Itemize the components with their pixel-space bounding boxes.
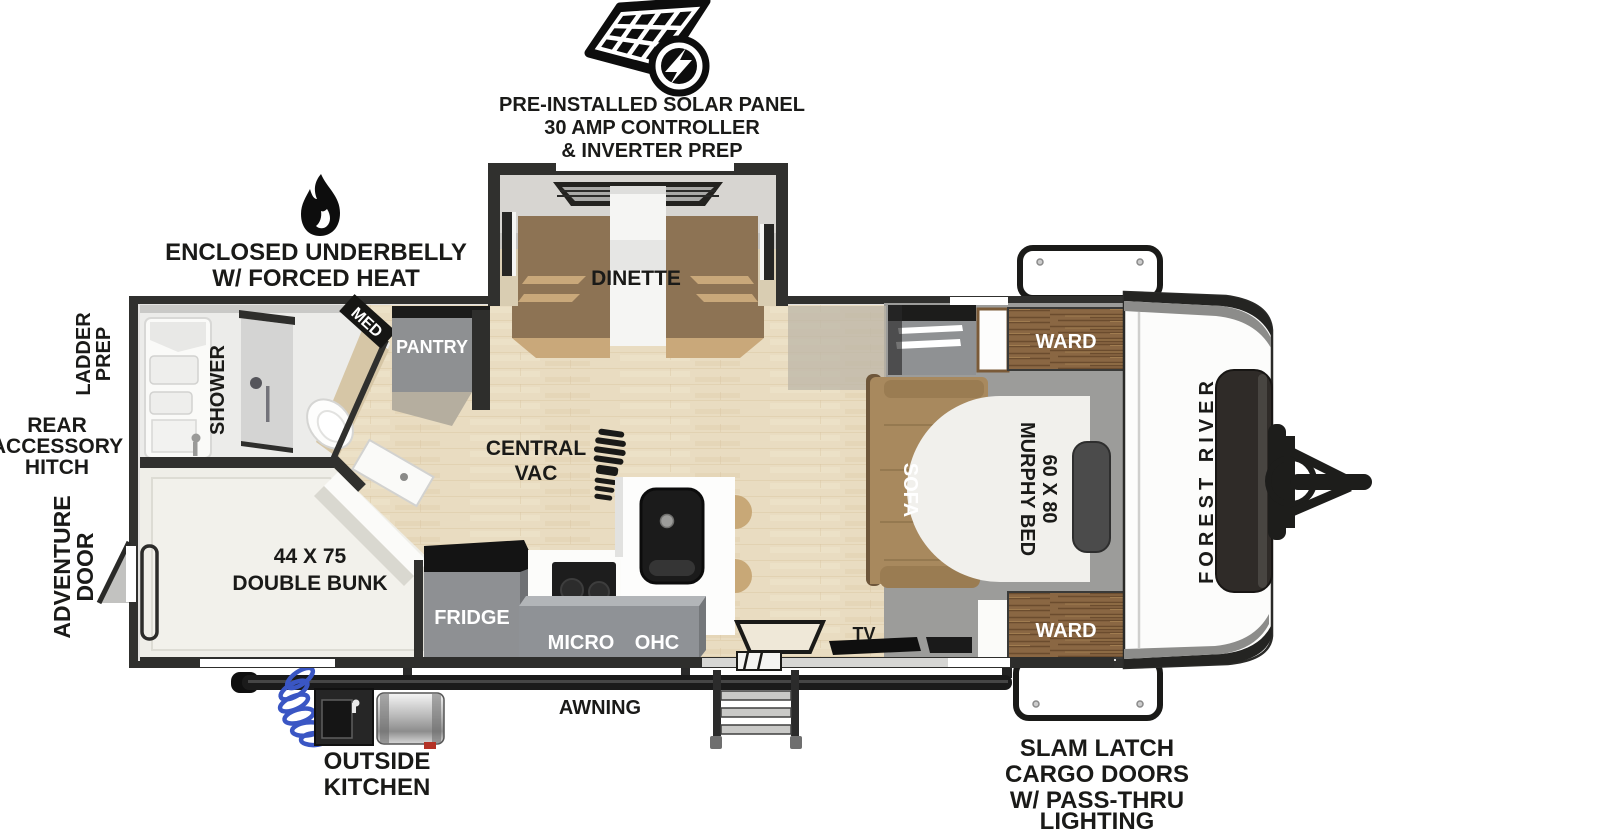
svg-text:AWNING: AWNING — [559, 697, 641, 719]
svg-text:FOREST RIVER: FOREST RIVER — [1196, 376, 1218, 584]
svg-text:SLAM LATCH: SLAM LATCH — [1020, 735, 1174, 762]
svg-text:DINETTE: DINETTE — [591, 267, 681, 290]
svg-text:DOUBLE BUNK: DOUBLE BUNK — [232, 572, 387, 595]
svg-text:& INVERTER PREP: & INVERTER PREP — [561, 140, 742, 162]
svg-text:PRE-INSTALLED SOLAR PANEL: PRE-INSTALLED SOLAR PANEL — [499, 94, 805, 116]
svg-text:CENTRAL: CENTRAL — [486, 437, 586, 460]
svg-text:OHC: OHC — [635, 632, 679, 654]
svg-text:SOFA: SOFA — [899, 463, 921, 517]
svg-text:FRIDGE: FRIDGE — [434, 607, 510, 629]
svg-text:HITCH: HITCH — [25, 456, 89, 479]
svg-text:ACCESSORY: ACCESSORY — [0, 435, 123, 458]
svg-text:44 X 75: 44 X 75 — [274, 545, 347, 568]
svg-text:WARD: WARD — [1035, 331, 1096, 353]
svg-text:PREP: PREP — [93, 327, 115, 381]
svg-text:TV: TV — [852, 624, 875, 644]
svg-text:LIGHTING: LIGHTING — [1040, 808, 1155, 829]
svg-text:MURPHY BED: MURPHY BED — [1016, 422, 1038, 556]
svg-text:ENCLOSED UNDERBELLY: ENCLOSED UNDERBELLY — [165, 239, 467, 266]
svg-text:LADDER: LADDER — [73, 312, 95, 396]
svg-text:60 X 80: 60 X 80 — [1038, 455, 1060, 524]
svg-text:SHOWER: SHOWER — [207, 344, 229, 435]
svg-text:KITCHEN: KITCHEN — [324, 774, 431, 801]
svg-text:REAR: REAR — [27, 414, 87, 437]
svg-text:VAC: VAC — [515, 462, 558, 485]
svg-text:PANTRY: PANTRY — [396, 337, 468, 357]
svg-text:CARGO DOORS: CARGO DOORS — [1005, 761, 1189, 788]
svg-text:MICRO: MICRO — [548, 632, 615, 654]
svg-text:W/ FORCED HEAT: W/ FORCED HEAT — [212, 265, 420, 292]
svg-text:DOOR: DOOR — [72, 532, 98, 601]
svg-text:30 AMP CONTROLLER: 30 AMP CONTROLLER — [544, 117, 760, 139]
svg-text:WARD: WARD — [1035, 620, 1096, 642]
svg-text:OUTSIDE: OUTSIDE — [324, 748, 431, 775]
